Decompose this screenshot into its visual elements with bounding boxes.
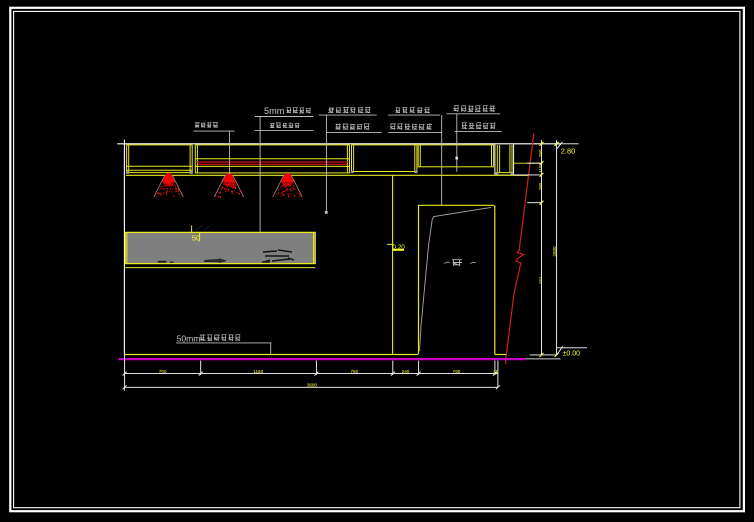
svg-text:260: 260 — [538, 149, 543, 157]
svg-text:2800: 2800 — [552, 246, 557, 257]
svg-text:5mm: 5mm — [264, 106, 285, 116]
svg-text:760: 760 — [350, 369, 358, 374]
svg-text:2.80: 2.80 — [561, 147, 575, 156]
svg-text:1150: 1150 — [253, 369, 263, 374]
svg-text:700: 700 — [159, 369, 167, 374]
svg-text:50mm: 50mm — [177, 333, 201, 343]
svg-text:240: 240 — [402, 369, 410, 374]
svg-text:±0.00: ±0.00 — [563, 350, 581, 357]
svg-text:30: 30 — [493, 369, 499, 374]
svg-text:3680: 3680 — [307, 383, 318, 388]
svg-text:50: 50 — [192, 234, 200, 243]
svg-text:115: 115 — [538, 165, 543, 173]
svg-text:760: 760 — [453, 369, 461, 374]
svg-text:280: 280 — [538, 182, 543, 190]
svg-text:152: 152 — [538, 276, 543, 284]
